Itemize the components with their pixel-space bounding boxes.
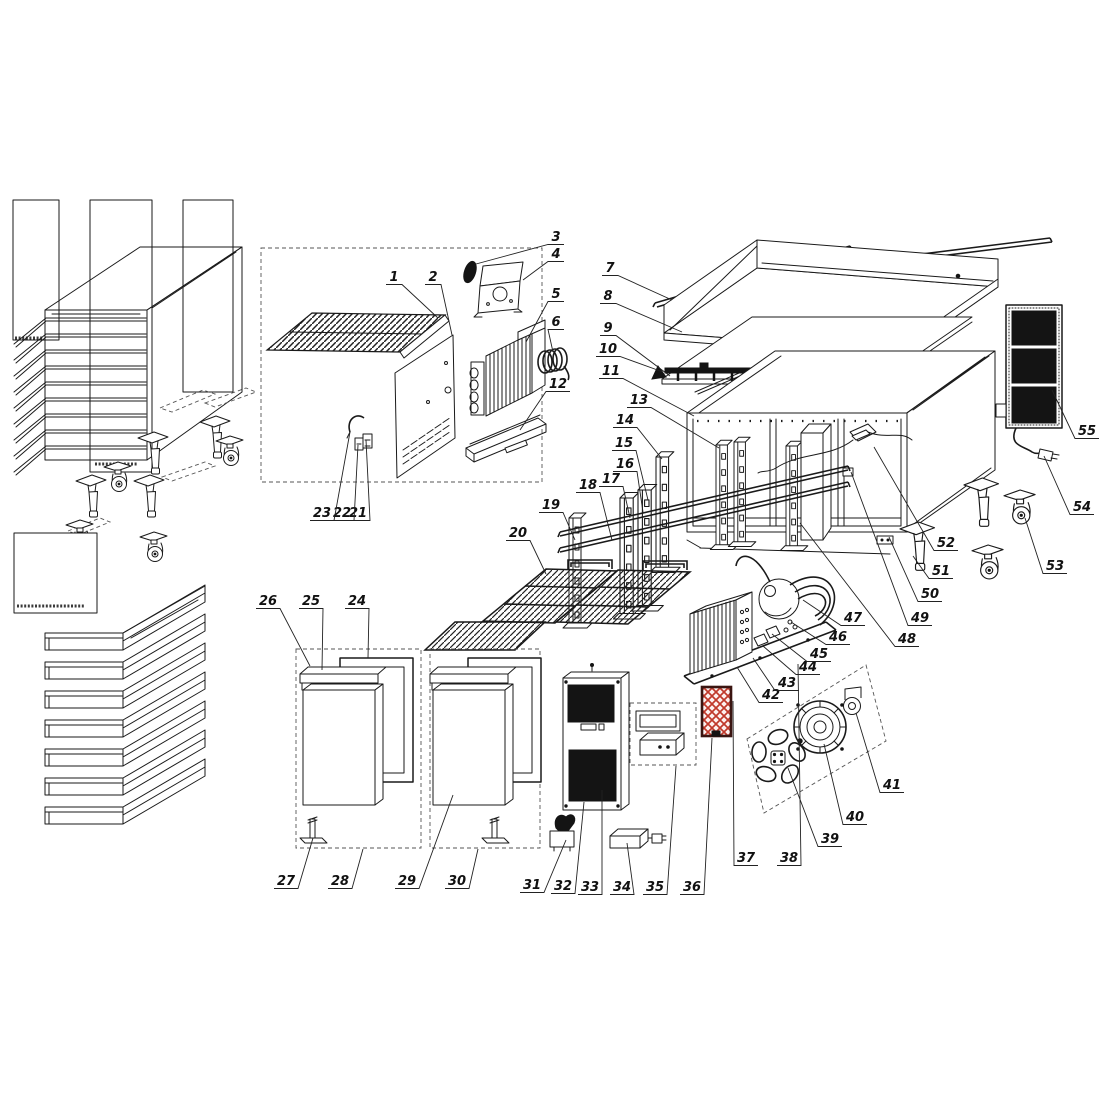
exploded-parts-diagram: 1234567891011121314151617181920212223242… [0, 0, 1100, 1100]
part-55-condenser-grille [996, 305, 1062, 428]
part-label-27: 27 [274, 838, 313, 889]
svg-text:27: 27 [277, 874, 296, 889]
svg-text:1: 1 [389, 270, 398, 285]
svg-text:32: 32 [554, 879, 572, 894]
svg-text:8: 8 [603, 289, 612, 304]
part-3-grommet [461, 260, 478, 284]
part-label-28: 28 [328, 849, 363, 889]
svg-text:13: 13 [630, 393, 648, 408]
evaporator-cover-column [801, 424, 831, 540]
part-20-wire-shelves [425, 560, 690, 650]
part-34-switch-box [610, 829, 666, 848]
svg-text:35: 35 [646, 880, 664, 895]
part-label-41: 41 [856, 713, 904, 793]
door-assembly-left-box [296, 649, 421, 848]
part-25-26-door [300, 667, 386, 805]
svg-text:26: 26 [259, 594, 277, 609]
svg-text:28: 28 [331, 874, 349, 889]
svg-text:43: 43 [777, 676, 796, 691]
part-label-42: 42 [737, 667, 783, 703]
svg-text:47: 47 [843, 611, 863, 626]
part-label-34: 34 [610, 843, 634, 895]
part-40-fan-guard [794, 701, 846, 753]
svg-text:49: 49 [910, 611, 929, 626]
part-label-37: 37 [733, 701, 758, 866]
part-label-36: 36 [680, 738, 712, 895]
part-label-53: 53 [1025, 518, 1067, 574]
part-label-29: 29 [395, 795, 453, 889]
svg-text:50: 50 [921, 587, 939, 602]
svg-text:7: 7 [605, 261, 615, 276]
svg-text:36: 36 [683, 880, 701, 895]
part-label-39: 39 [788, 768, 842, 847]
svg-text:30: 30 [448, 874, 466, 889]
parts-21-22-23-fittings [347, 416, 372, 450]
svg-text:52: 52 [937, 536, 955, 551]
part-41-fan-motor [844, 687, 862, 715]
part-label-45: 45 [772, 634, 831, 662]
svg-text:31: 31 [523, 878, 541, 893]
svg-text:5: 5 [551, 287, 560, 302]
svg-text:16: 16 [616, 457, 634, 472]
svg-text:34: 34 [613, 880, 631, 895]
part-29-door [430, 667, 516, 805]
svg-text:54: 54 [1073, 500, 1091, 515]
part-5-condenser-coil [470, 320, 545, 416]
svg-text:23: 23 [313, 506, 331, 521]
svg-text:44: 44 [798, 660, 817, 675]
part-label-48: 48 [800, 523, 919, 647]
svg-text:14: 14 [616, 413, 634, 428]
part-54-power-cord [1014, 428, 1059, 461]
door-assembly-right-box [430, 649, 541, 848]
svg-text:39: 39 [821, 832, 839, 847]
svg-text:11: 11 [602, 364, 620, 379]
part-1-top-grille [267, 313, 449, 358]
part-label-24: 24 [345, 594, 369, 658]
tray-stack [45, 585, 205, 824]
part-label-20: 20 [506, 526, 546, 574]
diagram-canvas: 1234567891011121314151617181920212223242… [0, 0, 1100, 1100]
part-label-30: 30 [445, 849, 478, 889]
svg-text:9: 9 [603, 321, 612, 336]
part-31-hook-bracket [550, 815, 575, 851]
svg-text:10: 10 [599, 342, 617, 357]
svg-text:55: 55 [1078, 424, 1096, 439]
svg-text:12: 12 [549, 377, 567, 392]
svg-text:38: 38 [780, 851, 798, 866]
part-12-drip-tray [466, 415, 546, 462]
bottom-left-panel [14, 533, 97, 613]
svg-text:33: 33 [581, 880, 599, 895]
svg-text:29: 29 [398, 874, 416, 889]
part-label-43: 43 [753, 658, 799, 691]
svg-text:25: 25 [302, 594, 320, 609]
part-label-25: 25 [299, 594, 323, 670]
svg-text:4: 4 [550, 247, 560, 262]
svg-text:20: 20 [509, 526, 527, 541]
svg-text:24: 24 [348, 594, 366, 609]
part-11-cabinet-body [687, 351, 995, 554]
svg-text:3: 3 [551, 230, 560, 245]
part-label-6: 6 [548, 315, 564, 352]
insulation-panels [13, 200, 233, 472]
svg-text:19: 19 [542, 498, 560, 513]
svg-text:41: 41 [882, 778, 901, 793]
part-4-compressor-bracket [474, 262, 523, 317]
svg-text:21: 21 [349, 506, 367, 521]
part-label-54: 54 [1044, 456, 1094, 515]
svg-text:40: 40 [845, 810, 864, 825]
svg-text:46: 46 [828, 630, 847, 645]
svg-text:17: 17 [602, 472, 621, 487]
svg-text:18: 18 [579, 478, 597, 493]
svg-text:2: 2 [428, 270, 437, 285]
part-36-air-filter [702, 687, 731, 736]
svg-text:37: 37 [737, 851, 756, 866]
part-label-4: 4 [523, 247, 564, 280]
svg-text:51: 51 [932, 564, 950, 579]
electrical-parts-44-45-46 [754, 620, 797, 646]
part-33-vent-panel [563, 664, 629, 811]
svg-text:53: 53 [1046, 559, 1064, 574]
part-42-condenser-block [690, 592, 752, 674]
right-hinge-bracket [482, 817, 509, 843]
svg-text:45: 45 [809, 647, 828, 662]
svg-text:48: 48 [897, 632, 916, 647]
part-27-hinge-bracket [300, 817, 327, 843]
svg-text:15: 15 [615, 436, 633, 451]
part-35-controller-box [630, 703, 696, 765]
svg-text:6: 6 [551, 315, 560, 330]
